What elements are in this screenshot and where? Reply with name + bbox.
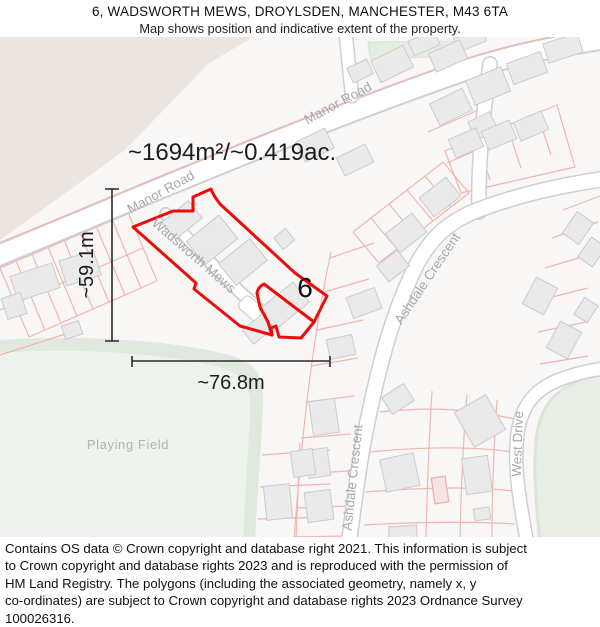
copyright-line: HM Land Registry. The polygons (includin… — [5, 575, 600, 592]
width-measure-label: ~76.8m — [197, 372, 264, 394]
copyright-line: Contains OS data © Crown copyright and d… — [5, 540, 600, 557]
height-measure-label: ~59.1m — [76, 231, 98, 298]
area-label: ~1694m²/~0.419ac. — [128, 139, 336, 166]
copyright-line: 100026316. — [5, 610, 600, 627]
playing-field-label: Playing Field — [87, 437, 169, 452]
page-title: 6, WADSWORTH MEWS, DROYLSDEN, MANCHESTER… — [0, 0, 600, 19]
header: 6, WADSWORTH MEWS, DROYLSDEN, MANCHESTER… — [0, 0, 600, 37]
copyright-line: to Crown copyright and database rights 2… — [5, 557, 600, 574]
page-subtitle: Map shows position and indicative extent… — [0, 19, 600, 36]
map-canvas: ~59.1m ~76.8m ~1694m²/~0.419ac. 6 Manor … — [0, 37, 600, 537]
plot-number-label: 6 — [297, 272, 313, 303]
pink-building — [431, 476, 448, 504]
footer: Contains OS data © Crown copyright and d… — [0, 537, 600, 625]
copyright-line: co-ordinates) are subject to Crown copyr… — [5, 592, 600, 609]
west-drive-label: West Drive — [509, 411, 526, 477]
